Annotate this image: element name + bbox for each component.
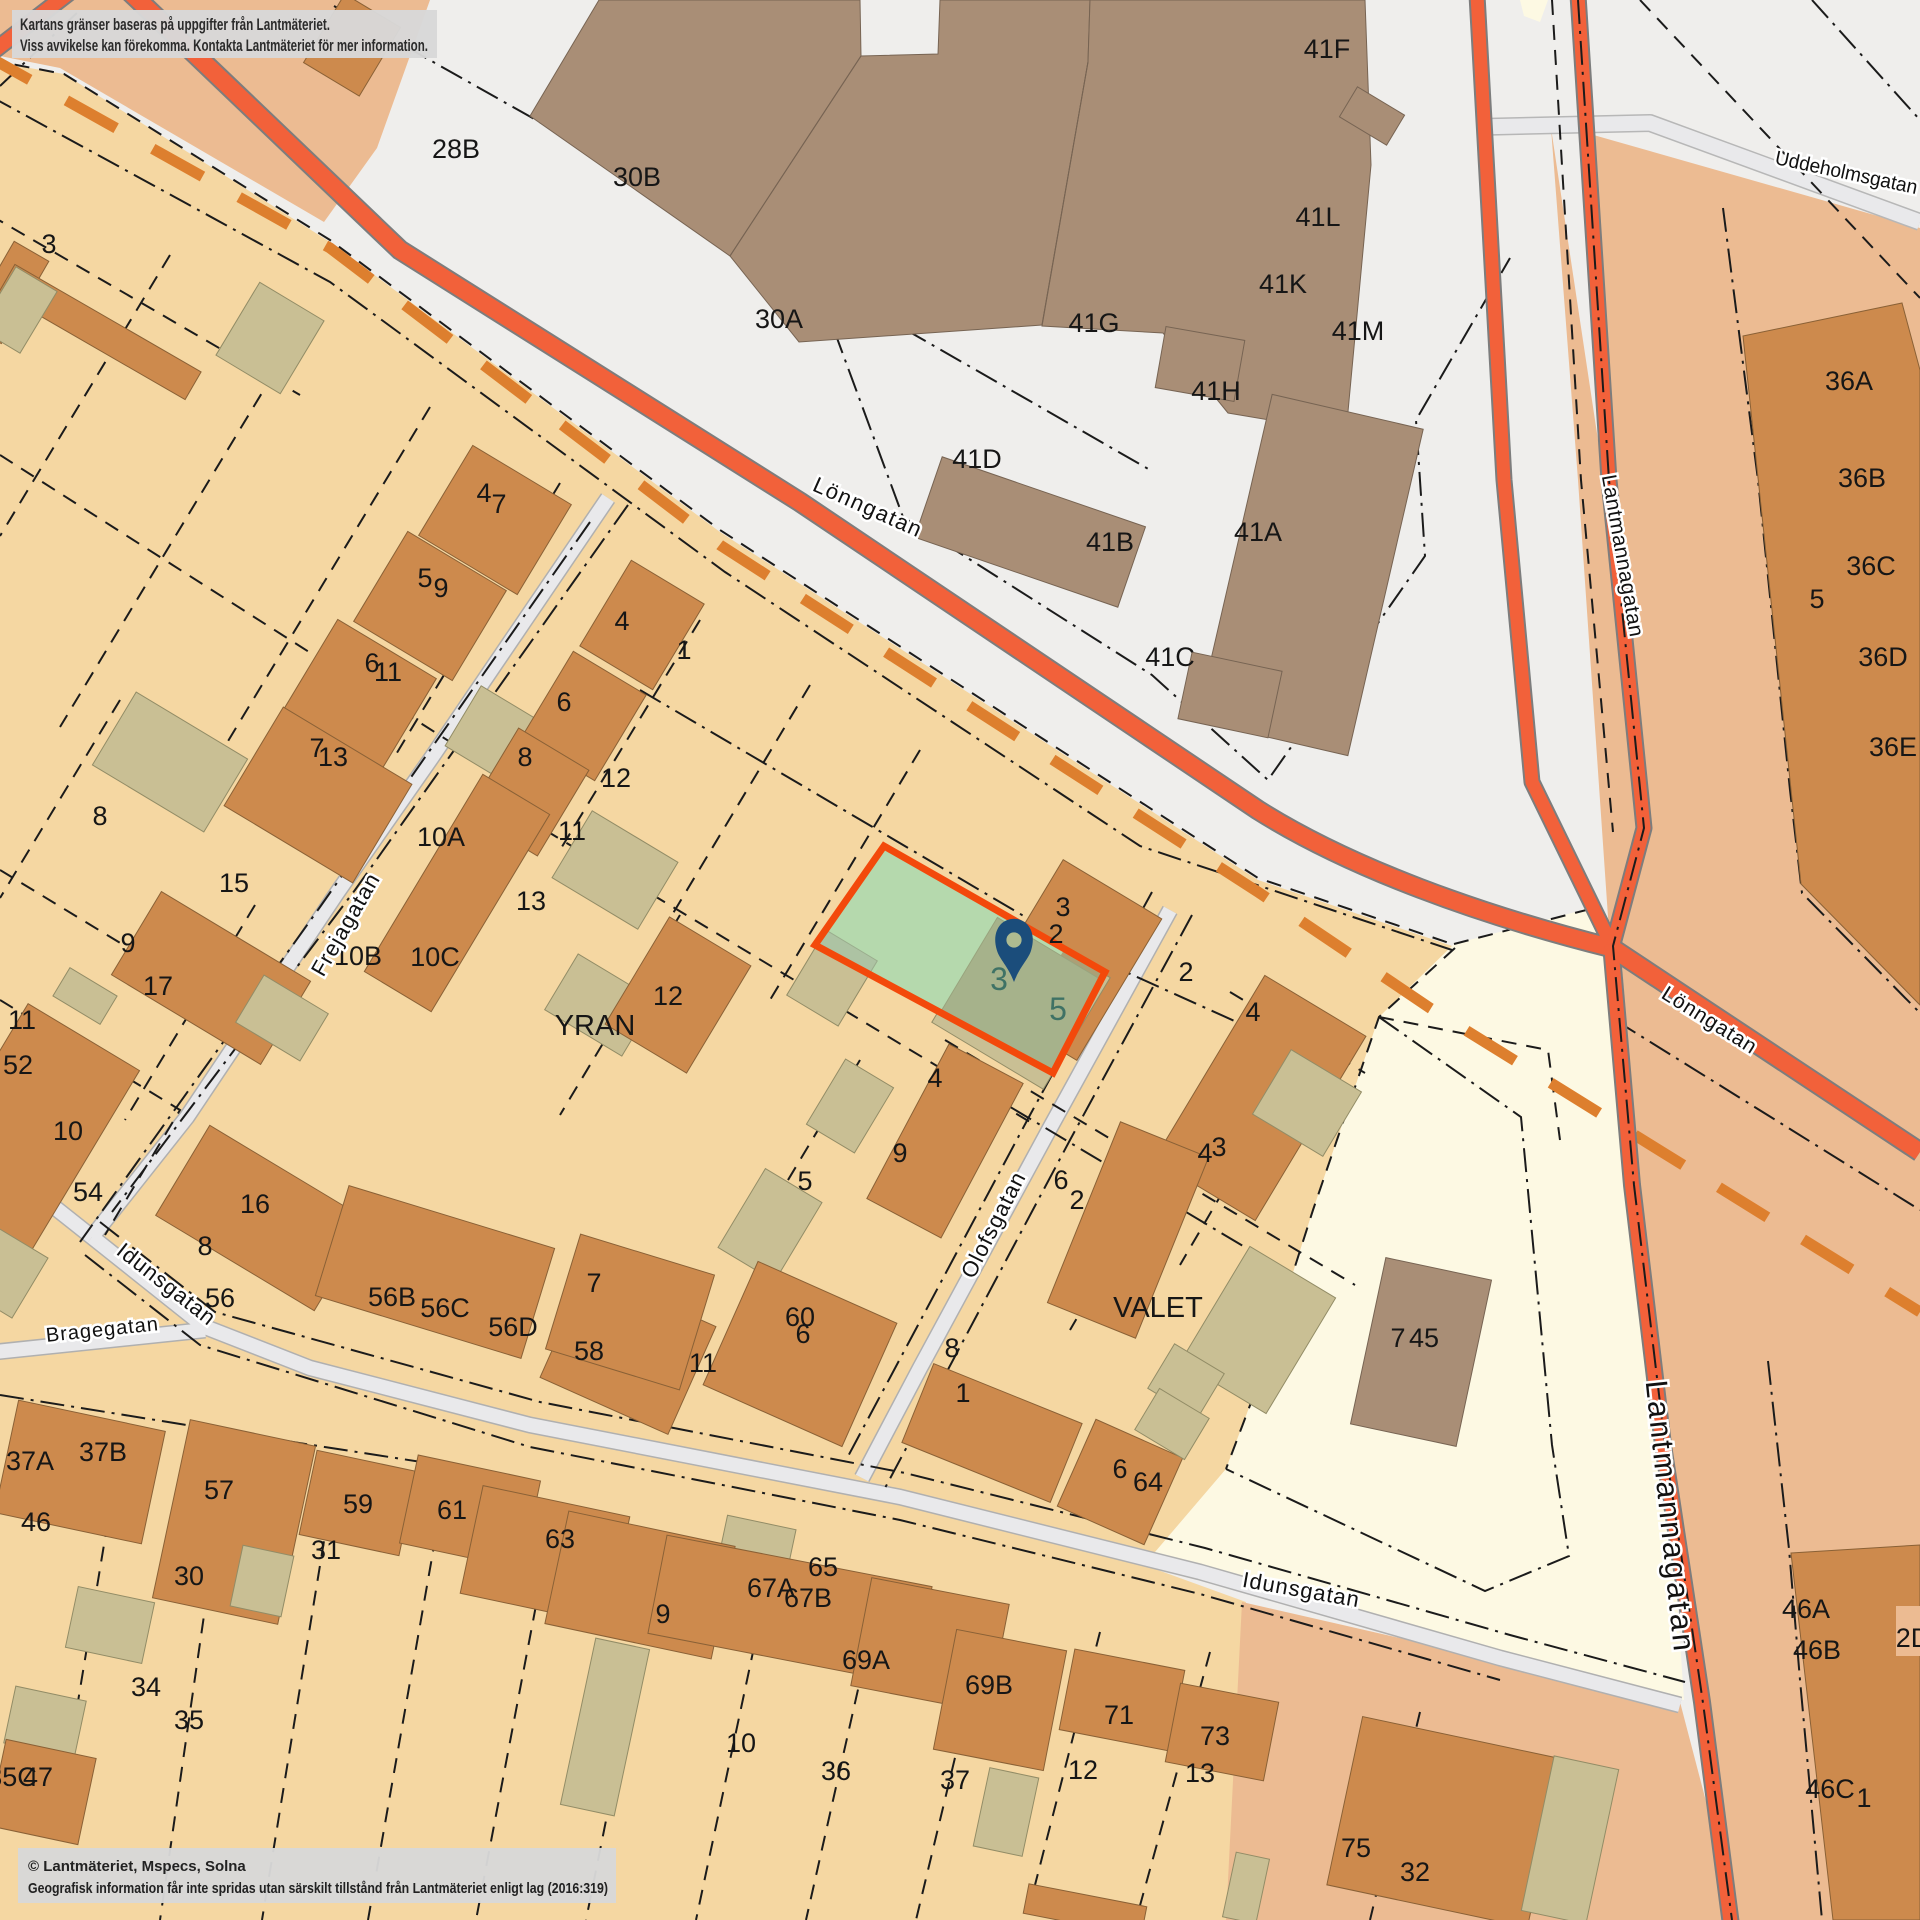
svg-text:56B: 56B — [368, 1282, 416, 1312]
svg-text:73: 73 — [1200, 1721, 1230, 1751]
svg-text:6: 6 — [1053, 1165, 1068, 1195]
svg-text:41G: 41G — [1068, 308, 1119, 338]
svg-text:8: 8 — [517, 742, 532, 772]
svg-text:56C: 56C — [420, 1293, 470, 1323]
svg-text:46: 46 — [21, 1507, 51, 1537]
svg-text:65: 65 — [808, 1552, 838, 1582]
svg-text:75: 75 — [1341, 1833, 1371, 1863]
svg-text:5: 5 — [417, 563, 432, 593]
svg-text:4: 4 — [614, 606, 629, 636]
svg-text:8: 8 — [944, 1333, 959, 1363]
svg-text:6: 6 — [1112, 1454, 1127, 1484]
svg-text:64: 64 — [1133, 1467, 1163, 1497]
svg-text:41B: 41B — [1086, 527, 1134, 557]
svg-text:41H: 41H — [1191, 376, 1241, 406]
svg-text:37A: 37A — [6, 1446, 54, 1476]
svg-text:12: 12 — [601, 763, 631, 793]
svg-text:41F: 41F — [1304, 34, 1351, 64]
svg-text:7: 7 — [586, 1268, 601, 1298]
svg-text:YRAN: YRAN — [555, 1010, 636, 1042]
svg-text:35: 35 — [174, 1705, 204, 1735]
svg-text:28B: 28B — [432, 134, 480, 164]
svg-text:69B: 69B — [965, 1670, 1013, 1700]
svg-text:9: 9 — [655, 1599, 670, 1629]
svg-text:4: 4 — [1197, 1138, 1212, 1168]
svg-text:47: 47 — [23, 1762, 53, 1792]
svg-text:10C: 10C — [410, 942, 460, 972]
svg-text:13: 13 — [516, 886, 546, 916]
svg-text:36A: 36A — [1825, 366, 1873, 396]
svg-text:41M: 41M — [1332, 316, 1385, 346]
svg-text:41K: 41K — [1259, 269, 1307, 299]
svg-text:63: 63 — [545, 1524, 575, 1554]
svg-text:11: 11 — [8, 1005, 36, 1035]
svg-text:17: 17 — [143, 971, 173, 1001]
svg-text:7: 7 — [491, 489, 506, 519]
svg-text:5: 5 — [1809, 584, 1824, 614]
svg-text:11: 11 — [374, 657, 402, 687]
svg-text:67B: 67B — [784, 1583, 832, 1613]
svg-text:36B: 36B — [1838, 463, 1886, 493]
svg-text:12: 12 — [653, 981, 683, 1011]
svg-text:30A: 30A — [755, 304, 803, 334]
svg-text:1: 1 — [676, 635, 691, 665]
svg-text:16: 16 — [240, 1189, 270, 1219]
svg-text:11: 11 — [689, 1348, 717, 1378]
svg-text:37: 37 — [940, 1765, 970, 1795]
svg-text:30: 30 — [174, 1561, 204, 1591]
svg-text:4: 4 — [927, 1063, 942, 1093]
svg-text:9: 9 — [892, 1138, 907, 1168]
svg-text:VALET: VALET — [1113, 1292, 1203, 1324]
svg-text:36E: 36E — [1869, 732, 1917, 762]
svg-text:2: 2 — [1178, 957, 1193, 987]
svg-text:2: 2 — [1069, 1185, 1084, 1215]
svg-text:9: 9 — [120, 928, 135, 958]
svg-text:2: 2 — [1048, 919, 1063, 949]
svg-text:36C: 36C — [1846, 551, 1896, 581]
svg-text:54: 54 — [73, 1177, 103, 1207]
svg-text:3: 3 — [41, 229, 56, 259]
svg-text:61: 61 — [437, 1495, 467, 1525]
svg-text:11: 11 — [558, 816, 586, 846]
svg-text:71: 71 — [1104, 1700, 1134, 1730]
svg-text:46B: 46B — [1793, 1635, 1841, 1665]
svg-text:30B: 30B — [613, 162, 661, 192]
svg-text:8: 8 — [197, 1231, 212, 1261]
svg-text:5: 5 — [797, 1166, 812, 1196]
svg-text:1: 1 — [955, 1378, 970, 1408]
svg-text:31: 31 — [311, 1535, 341, 1565]
svg-text:3: 3 — [1055, 892, 1070, 922]
svg-text:Viss avvikelse kan förekomma.: Viss avvikelse kan förekomma. Kontakta L… — [20, 36, 428, 55]
svg-text:13: 13 — [1185, 1758, 1215, 1788]
svg-text:56D: 56D — [488, 1312, 538, 1342]
svg-text:Kartans gränser baseras på upp: Kartans gränser baseras på uppgifter frå… — [20, 15, 330, 34]
svg-text:36D: 36D — [1858, 642, 1908, 672]
svg-text:69A: 69A — [842, 1645, 890, 1675]
svg-text:36: 36 — [821, 1756, 851, 1786]
svg-text:34: 34 — [131, 1672, 161, 1702]
svg-text:41A: 41A — [1234, 517, 1282, 547]
svg-text:15: 15 — [219, 868, 249, 898]
svg-text:1: 1 — [1856, 1783, 1871, 1813]
svg-text:4: 4 — [1245, 997, 1260, 1027]
svg-text:41C: 41C — [1145, 642, 1195, 672]
svg-text:37B: 37B — [79, 1437, 127, 1467]
svg-text:7: 7 — [1390, 1323, 1405, 1353]
svg-text:46C: 46C — [1805, 1774, 1855, 1804]
svg-text:10: 10 — [726, 1728, 756, 1758]
svg-text:10: 10 — [53, 1116, 83, 1146]
svg-text:57: 57 — [204, 1475, 234, 1505]
svg-text:3: 3 — [990, 961, 1008, 997]
svg-text:52: 52 — [3, 1050, 33, 1080]
svg-text:58: 58 — [574, 1336, 604, 1366]
svg-text:6: 6 — [556, 687, 571, 717]
svg-text:45: 45 — [1409, 1323, 1439, 1353]
svg-text:32: 32 — [1400, 1857, 1430, 1887]
svg-text:8: 8 — [92, 801, 107, 831]
svg-text:6: 6 — [795, 1319, 810, 1349]
svg-text:© Lantmäteriet, Mspecs, Solna: © Lantmäteriet, Mspecs, Solna — [28, 1858, 246, 1875]
svg-text:Geografisk information får int: Geografisk information får inte spridas … — [28, 1880, 608, 1897]
svg-text:3: 3 — [1211, 1132, 1226, 1162]
svg-text:2D: 2D — [1896, 1623, 1920, 1653]
svg-text:4: 4 — [476, 478, 491, 508]
svg-text:46A: 46A — [1782, 1594, 1830, 1624]
svg-text:13: 13 — [318, 742, 348, 772]
svg-text:10A: 10A — [417, 822, 465, 852]
svg-text:41D: 41D — [952, 444, 1002, 474]
svg-text:5: 5 — [1049, 991, 1067, 1027]
svg-text:59: 59 — [343, 1489, 373, 1519]
svg-text:9: 9 — [433, 573, 448, 603]
svg-text:41L: 41L — [1295, 202, 1340, 232]
svg-text:12: 12 — [1068, 1755, 1098, 1785]
